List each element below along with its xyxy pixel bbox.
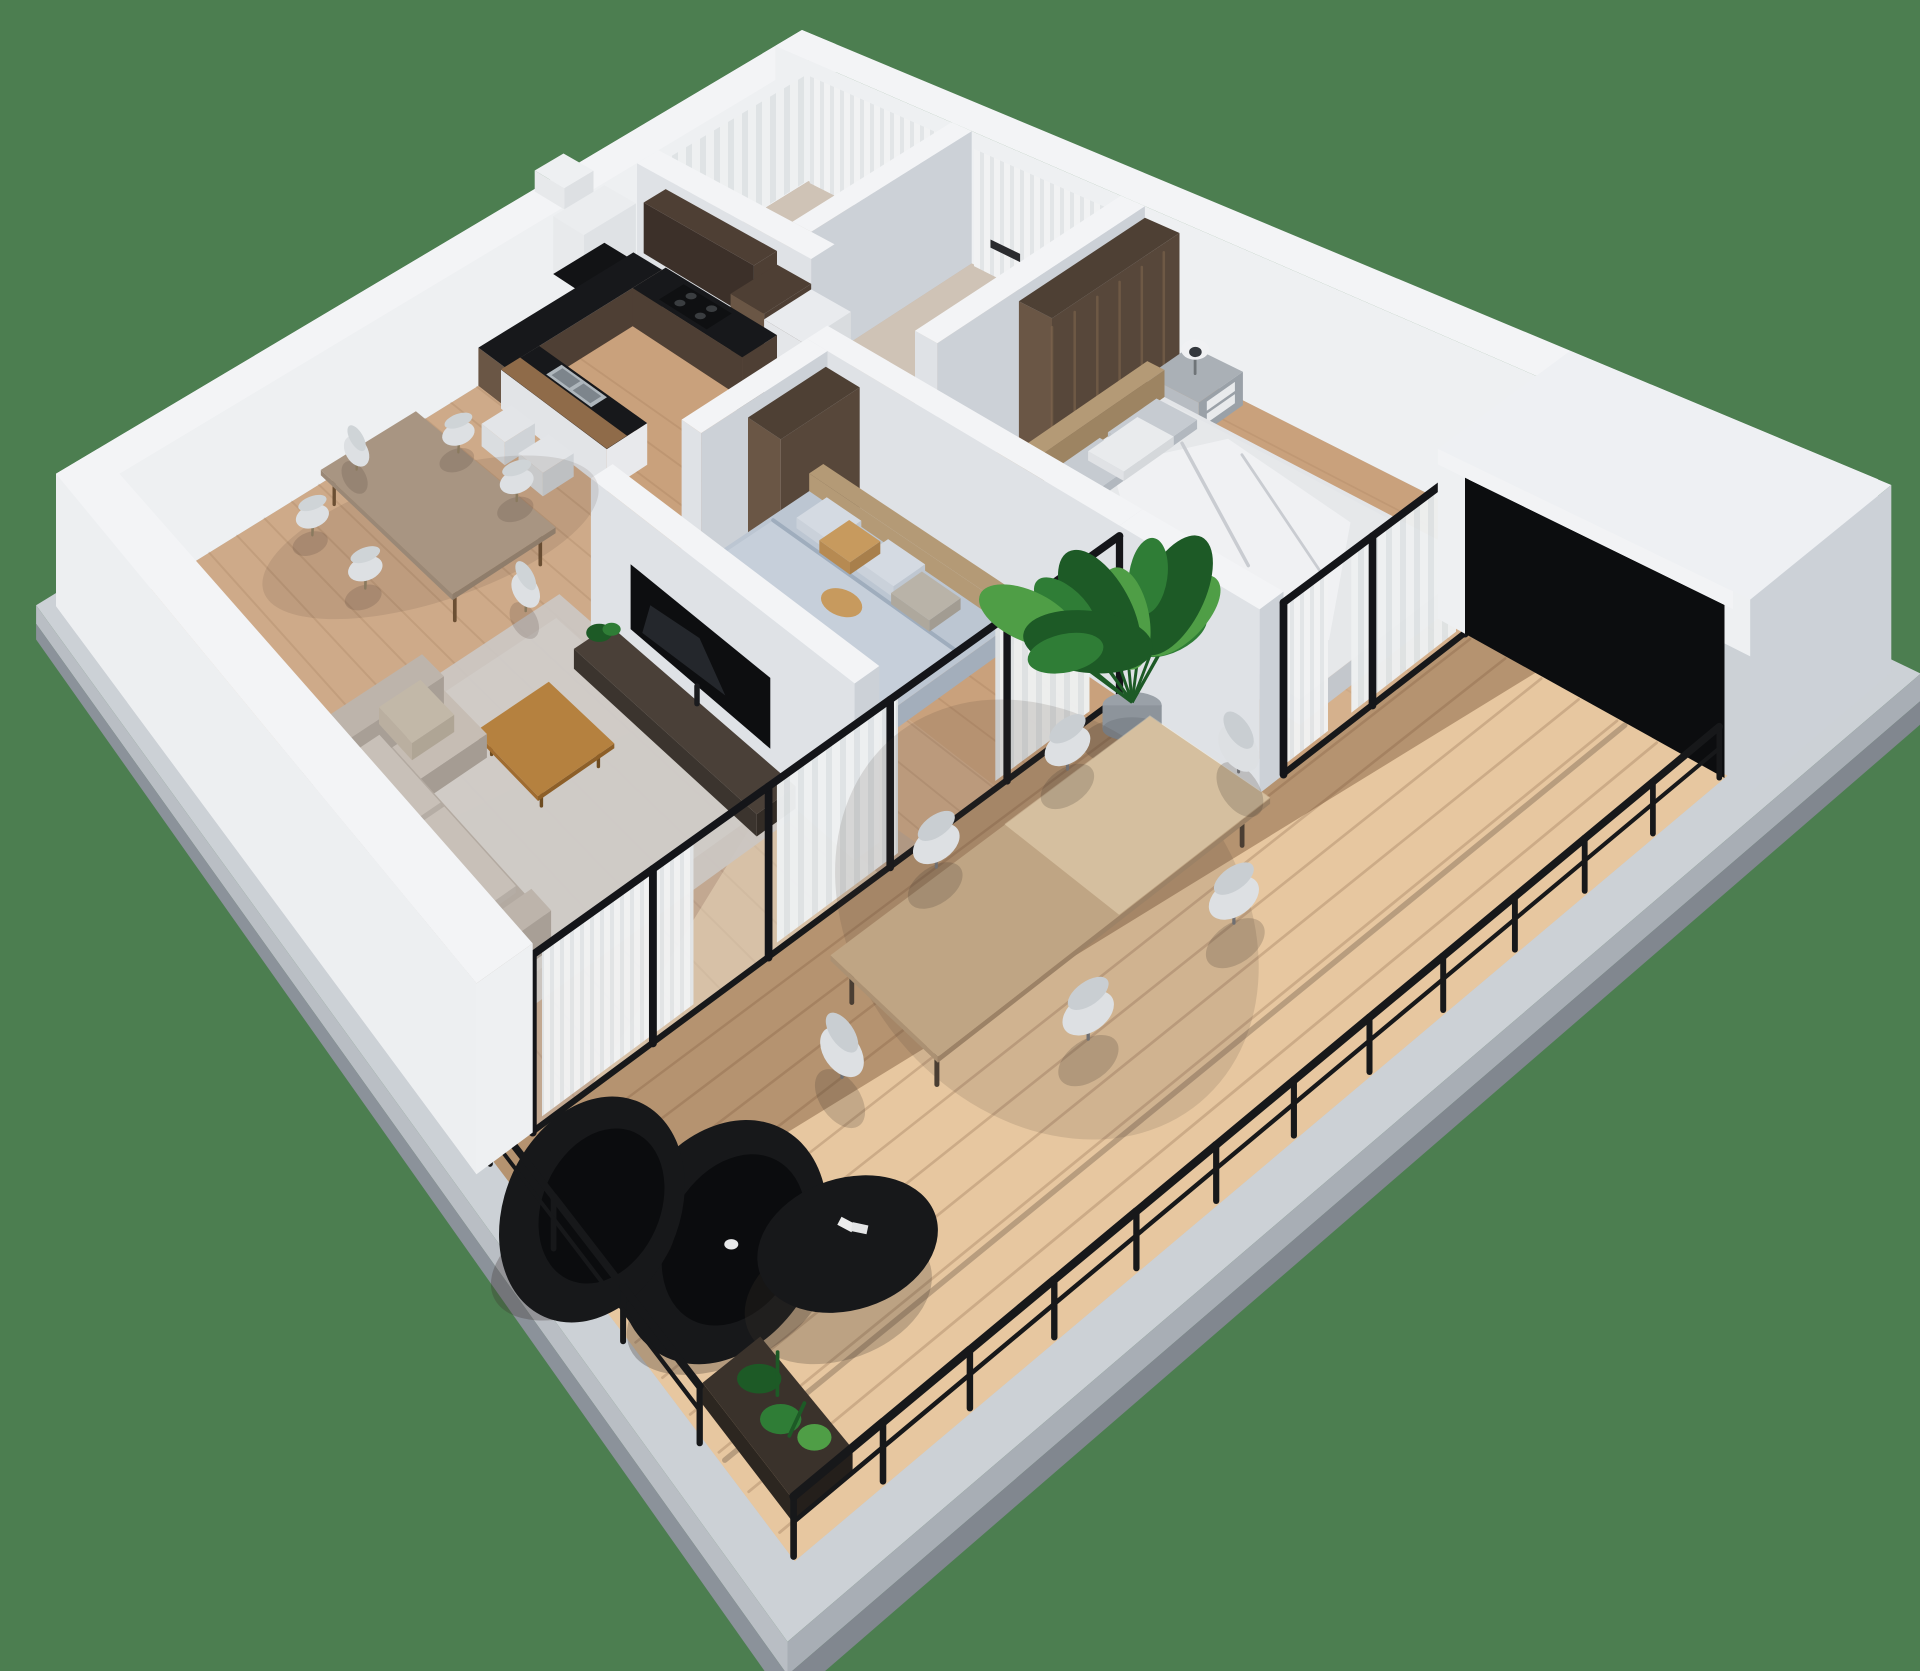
floorplan-render [0, 0, 1920, 1671]
console-plant [603, 623, 621, 636]
burner [706, 305, 717, 312]
floorplan-stage [0, 0, 1920, 1671]
shrub [797, 1424, 831, 1451]
curtain [1286, 573, 1328, 764]
burner [695, 313, 706, 320]
vase [1189, 347, 1202, 357]
burner [674, 300, 685, 307]
shrub [737, 1364, 781, 1394]
burner [686, 293, 697, 300]
white-trim [1438, 457, 1465, 633]
egg-dot [724, 1239, 738, 1249]
